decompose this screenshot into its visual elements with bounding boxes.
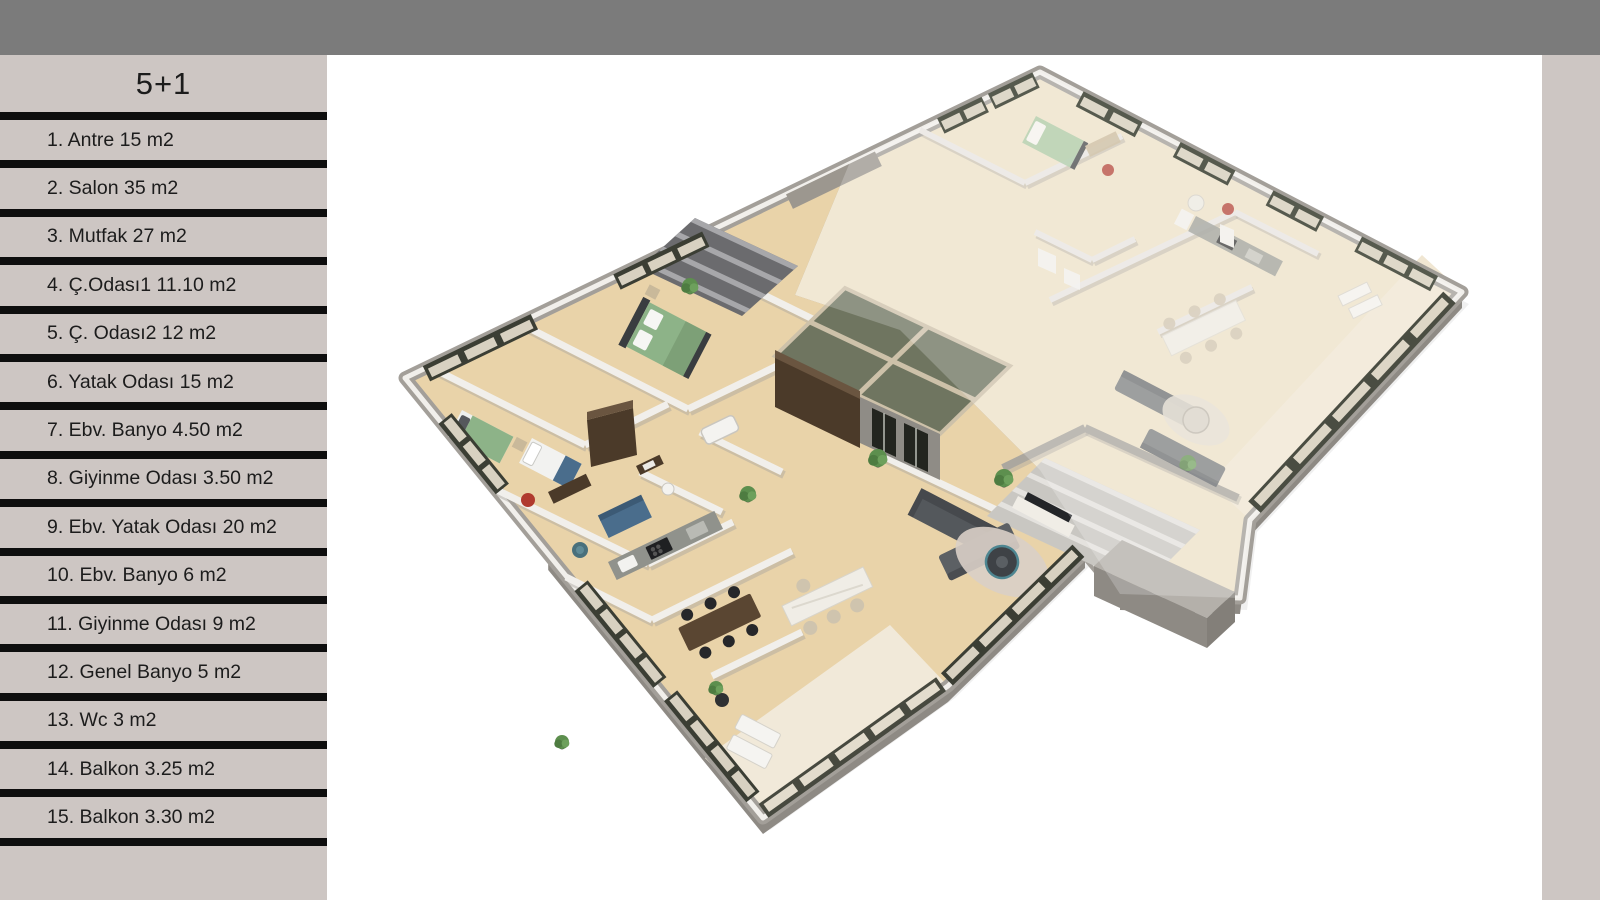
legend-list: 1. Antre 15 m22. Salon 35 m23. Mutfak 27… <box>0 112 327 846</box>
plan-type-title: 5+1 <box>0 55 327 112</box>
legend-item-label: 3. Mutfak 27 m2 <box>47 225 187 248</box>
legend-item: 15. Balkon 3.30 m2 <box>0 797 327 837</box>
legend-divider <box>0 306 327 314</box>
legend-item: 5. Ç. Odası2 12 m2 <box>0 314 327 354</box>
legend-divider <box>0 789 327 797</box>
legend-item: 12. Genel Banyo 5 m2 <box>0 652 327 692</box>
legend-item: 10. Ebv. Banyo 6 m2 <box>0 556 327 596</box>
legend-divider <box>0 548 327 556</box>
legend-item: 2. Salon 35 m2 <box>0 168 327 208</box>
legend-divider <box>0 644 327 652</box>
legend-item: 4. Ç.Odası1 11.10 m2 <box>0 265 327 305</box>
legend-item: 8. Giyinme Odası 3.50 m2 <box>0 459 327 499</box>
legend-item-label: 1. Antre 15 m2 <box>47 129 174 152</box>
legend-item-label: 9. Ebv. Yatak Odası 20 m2 <box>47 516 277 539</box>
legend-item: 6. Yatak Odası 15 m2 <box>0 362 327 402</box>
legend-divider <box>0 257 327 265</box>
plant <box>554 735 569 749</box>
legend-panel: 5+1 1. Antre 15 m22. Salon 35 m23. Mutfa… <box>0 55 327 900</box>
legend-item-label: 4. Ç.Odası1 11.10 m2 <box>47 274 236 297</box>
legend-divider <box>0 112 327 120</box>
legend-item: 14. Balkon 3.25 m2 <box>0 749 327 789</box>
legend-item-label: 13. Wc 3 m2 <box>47 709 156 732</box>
legend-item: 13. Wc 3 m2 <box>0 701 327 741</box>
page: 5+1 1. Antre 15 m22. Salon 35 m23. Mutfa… <box>0 0 1600 900</box>
legend-divider <box>0 499 327 507</box>
legend-item: 9. Ebv. Yatak Odası 20 m2 <box>0 507 327 547</box>
legend-divider <box>0 209 327 217</box>
legend-divider <box>0 451 327 459</box>
legend-item: 1. Antre 15 m2 <box>0 120 327 160</box>
legend-item: 11. Giyinme Odası 9 m2 <box>0 604 327 644</box>
legend-divider <box>0 741 327 749</box>
legend-divider <box>0 402 327 410</box>
legend-item-label: 10. Ebv. Banyo 6 m2 <box>47 564 227 587</box>
top-bar <box>0 0 1600 55</box>
legend-item-label: 2. Salon 35 m2 <box>47 177 178 200</box>
legend-item-label: 12. Genel Banyo 5 m2 <box>47 661 241 684</box>
legend-divider <box>0 693 327 701</box>
right-margin-strip <box>1542 55 1600 900</box>
legend-divider <box>0 160 327 168</box>
legend-item: 3. Mutfak 27 m2 <box>0 217 327 257</box>
legend-divider <box>0 354 327 362</box>
legend-item-label: 5. Ç. Odası2 12 m2 <box>47 322 216 345</box>
legend-item-label: 14. Balkon 3.25 m2 <box>47 758 215 781</box>
legend-divider <box>0 838 327 846</box>
legend-item-label: 7. Ebv. Banyo 4.50 m2 <box>47 419 243 442</box>
legend-item-label: 15. Balkon 3.30 m2 <box>47 806 215 829</box>
legend-item: 7. Ebv. Banyo 4.50 m2 <box>0 410 327 450</box>
legend-divider <box>0 596 327 604</box>
legend-item-label: 8. Giyinme Odası 3.50 m2 <box>47 467 274 490</box>
legend-item-label: 11. Giyinme Odası 9 m2 <box>47 613 256 636</box>
legend-item-label: 6. Yatak Odası 15 m2 <box>47 371 234 394</box>
